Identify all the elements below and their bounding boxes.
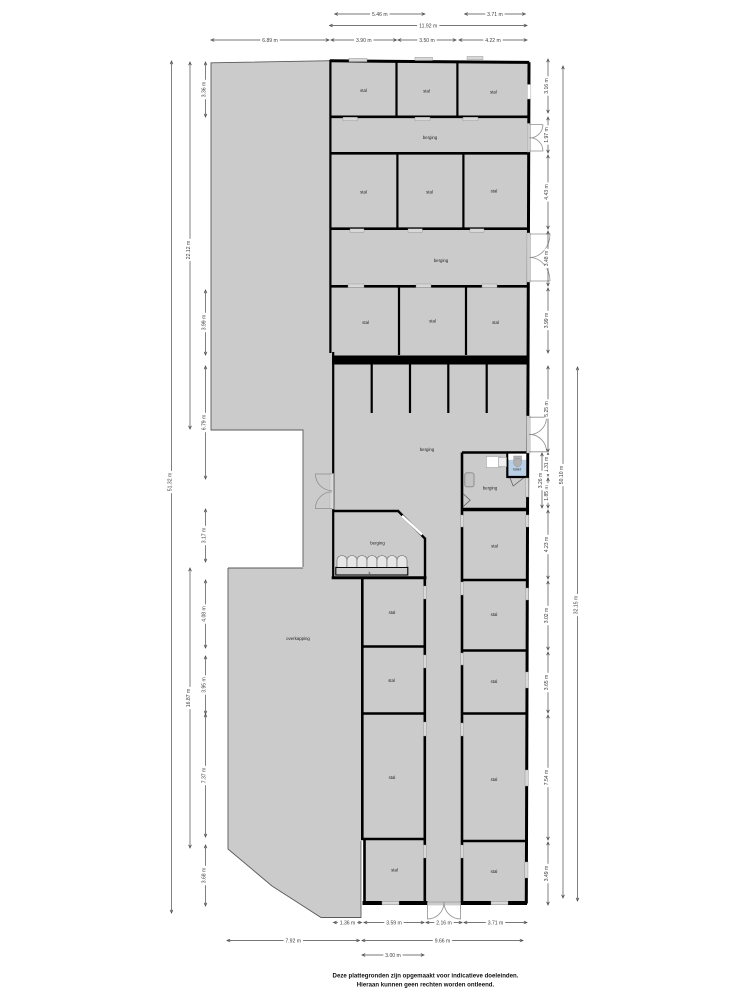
svg-text:berging: berging (483, 486, 498, 491)
svg-text:3.99 m: 3.99 m (544, 313, 550, 329)
svg-text:6.79 m: 6.79 m (202, 415, 208, 431)
svg-text:9.66 m: 9.66 m (435, 939, 451, 945)
svg-text:4.43 m: 4.43 m (544, 184, 550, 200)
svg-text:Deze plattegronden zijn opgema: Deze plattegronden zijn opgemaakt voor i… (333, 973, 519, 980)
svg-text:3.36 m: 3.36 m (202, 82, 208, 98)
svg-text:1.31 m: 1.31 m (544, 457, 550, 473)
svg-text:3.48 m: 3.48 m (544, 251, 550, 267)
svg-text:stal: stal (491, 612, 498, 617)
svg-text:3.90 m: 3.90 m (356, 38, 372, 44)
svg-text:3.02 m: 3.02 m (544, 608, 550, 624)
svg-text:3.68 m: 3.68 m (202, 868, 208, 884)
svg-text:stal: stal (389, 775, 396, 780)
svg-text:Hieraan kunnen geen rechten wo: Hieraan kunnen geen rechten worden ontle… (357, 982, 495, 989)
svg-text:3.71 m: 3.71 m (488, 921, 504, 927)
svg-text:stal: stal (360, 88, 367, 93)
svg-text:stal: stal (492, 320, 499, 325)
svg-text:3.95 m: 3.95 m (202, 677, 208, 693)
svg-text:stal: stal (360, 190, 367, 195)
svg-text:3.59 m: 3.59 m (386, 921, 402, 927)
svg-text:stal: stal (490, 90, 497, 95)
svg-text:3.16 m: 3.16 m (544, 78, 550, 94)
svg-text:3.71 m: 3.71 m (487, 12, 503, 18)
svg-text:5.25 m: 5.25 m (544, 401, 550, 417)
svg-text:stal: stal (429, 319, 436, 324)
svg-text:7.92 m: 7.92 m (285, 939, 301, 945)
svg-text:6.89 m: 6.89 m (262, 38, 278, 44)
svg-text:toilet: toilet (513, 468, 521, 472)
svg-text:4.23 m: 4.23 m (544, 537, 550, 553)
svg-text:3.49 m: 3.49 m (544, 866, 550, 882)
svg-text:3.99 m: 3.99 m (202, 315, 208, 331)
svg-text:7.54 m: 7.54 m (544, 770, 550, 786)
svg-text:stal: stal (491, 869, 498, 874)
svg-text:3.17 m: 3.17 m (202, 528, 208, 544)
svg-text:stal: stal (426, 190, 433, 195)
svg-text:16.87 m: 16.87 m (186, 689, 192, 707)
svg-text:50.10 m: 50.10 m (559, 466, 565, 484)
svg-text:11.92 m: 11.92 m (419, 24, 437, 30)
svg-text:stal: stal (423, 89, 430, 94)
svg-text:3.00 m: 3.00 m (385, 953, 401, 959)
svg-text:3.50 m: 3.50 m (419, 38, 435, 44)
svg-text:5.46 m: 5.46 m (372, 12, 388, 18)
svg-text:4.08 m: 4.08 m (202, 606, 208, 622)
svg-text:stal: stal (389, 610, 396, 615)
svg-text:stal: stal (491, 777, 498, 782)
svg-text:stal: stal (391, 868, 398, 873)
svg-text:1.97 m: 1.97 m (544, 127, 550, 143)
svg-text:berging: berging (434, 258, 449, 263)
svg-text:3.26 m: 3.26 m (538, 473, 544, 489)
svg-text:stal: stal (491, 189, 498, 194)
svg-text:2.16 m: 2.16 m (436, 921, 452, 927)
svg-text:1.36 m: 1.36 m (340, 921, 356, 927)
svg-text:k: k (369, 571, 371, 575)
svg-text:4.22 m: 4.22 m (485, 38, 501, 44)
svg-text:overkapping: overkapping (286, 636, 310, 641)
svg-text:51.32 m: 51.32 m (168, 473, 174, 491)
svg-text:7.37 m: 7.37 m (202, 768, 208, 784)
svg-text:berging: berging (423, 135, 438, 140)
svg-text:22.12 m: 22.12 m (186, 241, 192, 259)
svg-text:32.15 m: 32.15 m (574, 596, 580, 614)
svg-text:3.65 m: 3.65 m (544, 675, 550, 691)
svg-text:stal: stal (362, 320, 369, 325)
svg-text:berging: berging (370, 541, 385, 546)
svg-text:berging: berging (420, 447, 435, 452)
svg-text:stal: stal (388, 678, 395, 683)
svg-text:stal: stal (491, 679, 498, 684)
svg-text:stal: stal (491, 544, 498, 549)
